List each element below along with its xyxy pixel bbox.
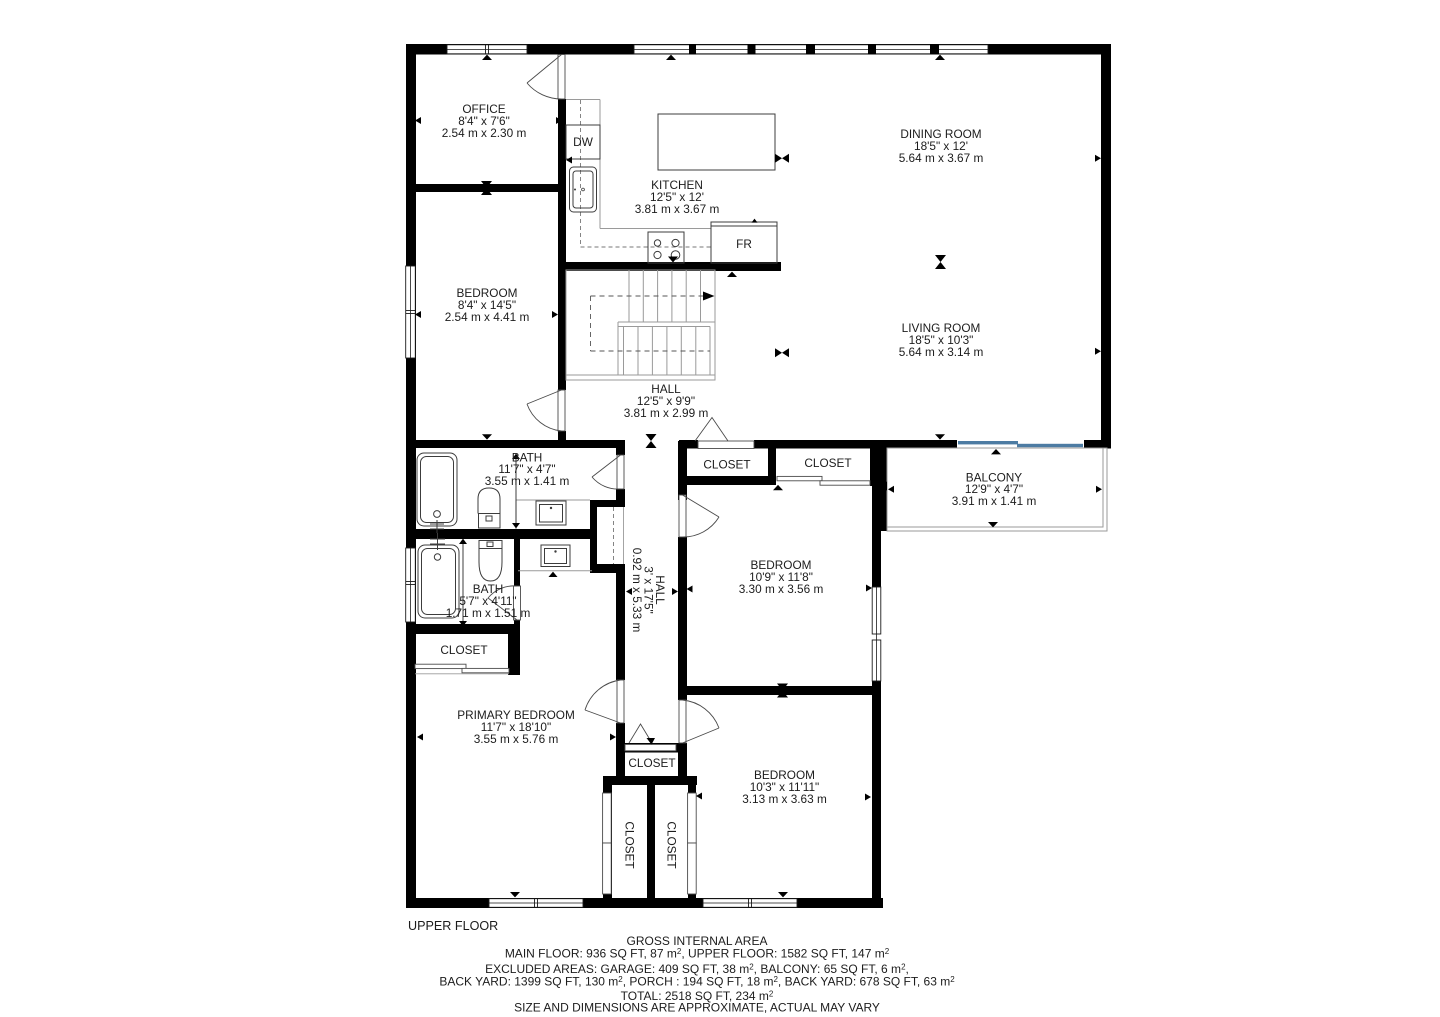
svg-text:CLOSET: CLOSET [628, 756, 675, 770]
svg-text:3.30 m x 3.56 m: 3.30 m x 3.56 m [739, 582, 824, 596]
svg-text:UPPER FLOOR: UPPER FLOOR [408, 919, 498, 933]
svg-text:3.13 m x 3.63 m: 3.13 m x 3.63 m [742, 792, 827, 806]
svg-text:0.92 m x 5.33 m: 0.92 m x 5.33 m [630, 548, 644, 633]
svg-text:3.81 m x 2.99 m: 3.81 m x 2.99 m [624, 406, 709, 420]
svg-text:3.91 m x 1.41 m: 3.91 m x 1.41 m [952, 494, 1037, 508]
svg-text:3.55 m x 5.76 m: 3.55 m x 5.76 m [474, 732, 559, 746]
svg-text:CLOSET: CLOSET [440, 643, 487, 657]
svg-text:5.64 m x 3.14 m: 5.64 m x 3.14 m [899, 345, 984, 359]
svg-text:EXCLUDED AREAS: GARAGE: 409 SQ: EXCLUDED AREAS: GARAGE: 409 SQ FT, 38 m2… [485, 962, 909, 976]
svg-text:BACK YARD: 1399 SQ FT, 130 m2,: BACK YARD: 1399 SQ FT, 130 m2, PORCH : 1… [439, 975, 955, 989]
svg-text:CLOSET: CLOSET [623, 821, 637, 868]
svg-text:CLOSET: CLOSET [665, 821, 679, 868]
svg-text:2.54 m x 4.41 m: 2.54 m x 4.41 m [445, 310, 530, 324]
svg-text:CLOSET: CLOSET [804, 456, 851, 470]
svg-text:MAIN FLOOR: 936 SQ FT, 87 m2,: MAIN FLOOR: 936 SQ FT, 87 m2, UPPER FLOO… [505, 946, 890, 960]
svg-text:3.81 m x 3.67 m: 3.81 m x 3.67 m [635, 202, 720, 216]
svg-text:1.71 m x 1.51 m: 1.71 m x 1.51 m [446, 606, 531, 620]
svg-text:3.55 m x 1.41 m: 3.55 m x 1.41 m [485, 474, 570, 488]
svg-text:5.64 m x 3.67 m: 5.64 m x 3.67 m [899, 151, 984, 165]
svg-text:2.54 m x 2.30 m: 2.54 m x 2.30 m [442, 126, 527, 140]
svg-text:SIZE AND DIMENSIONS ARE APPROX: SIZE AND DIMENSIONS ARE APPROXIMATE, ACT… [514, 1001, 880, 1015]
svg-text:DW: DW [573, 135, 594, 149]
svg-text:FR: FR [736, 237, 752, 251]
svg-text:CLOSET: CLOSET [703, 458, 750, 472]
